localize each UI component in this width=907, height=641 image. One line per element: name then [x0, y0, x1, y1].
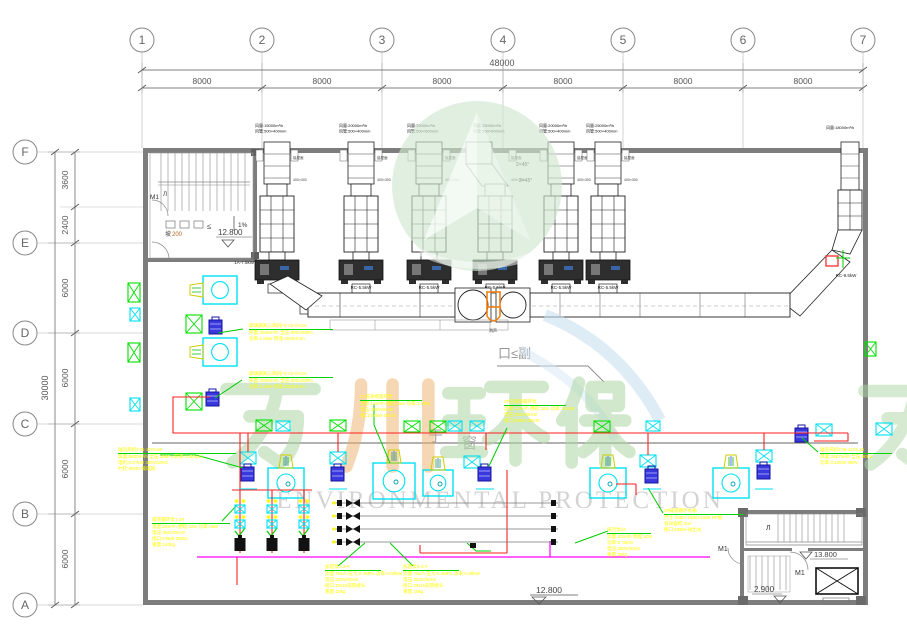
- shape: [731, 482, 735, 486]
- shape: [487, 307, 500, 321]
- shape: [209, 320, 222, 334]
- red-pipe: [248, 433, 764, 455]
- shape: [757, 465, 770, 479]
- shape: [404, 421, 420, 432]
- valve-dot: [306, 499, 310, 503]
- pump-icon: [645, 466, 658, 483]
- centrifugal-fan-icon: [423, 457, 453, 496]
- leader-line: [802, 438, 818, 452]
- shape: [240, 452, 256, 464]
- centrifugal-fan-icon: [190, 276, 237, 304]
- shape: [244, 464, 251, 467]
- shape: [594, 421, 610, 432]
- damper-green-icon: [865, 342, 876, 356]
- shape: [286, 482, 290, 486]
- centrifugal-fan-icon: [190, 338, 237, 366]
- leader-line: [390, 543, 413, 566]
- shape: [756, 450, 772, 462]
- damper-cyan-icon: [816, 424, 832, 436]
- shape: [256, 420, 272, 431]
- shape: [798, 425, 805, 428]
- shape: [212, 282, 229, 299]
- damper-green-icon: [186, 315, 202, 333]
- pump-body: [235, 538, 246, 551]
- shape: [212, 344, 229, 361]
- damper-cyan-icon: [464, 456, 480, 468]
- equipment-piping-layer: 消声: [0, 0, 907, 641]
- pump-icon: [478, 464, 491, 481]
- leader-line: [338, 543, 365, 566]
- shape: [209, 389, 216, 392]
- shape: [481, 464, 488, 467]
- red-pipe: [173, 397, 848, 433]
- fan-inlet-cone: [190, 345, 203, 359]
- shape: [478, 467, 491, 481]
- shape: [551, 539, 556, 545]
- shape: [128, 343, 140, 362]
- shape: [186, 315, 202, 333]
- valve-icon: [346, 525, 360, 533]
- shape: [551, 513, 556, 519]
- damper-green-icon: [594, 421, 610, 432]
- shape: [394, 480, 398, 484]
- shape: [203, 276, 237, 304]
- shape: [332, 540, 335, 543]
- shape: [795, 428, 808, 442]
- pump-icon: [757, 462, 770, 479]
- damper-cyan-icon: [130, 308, 140, 321]
- damper-cyan-icon: [646, 421, 660, 431]
- shape: [337, 539, 342, 545]
- shape: [337, 500, 342, 506]
- valve-dot: [299, 515, 303, 519]
- shape: [487, 292, 500, 307]
- shape: [430, 421, 446, 432]
- valve-row: [332, 538, 558, 546]
- shape: [551, 500, 556, 506]
- shape: [206, 392, 219, 406]
- valve-dot: [274, 515, 278, 519]
- pump-body: [267, 538, 278, 551]
- shape: [760, 462, 767, 465]
- damper-cyan-icon: [756, 450, 772, 462]
- centrifugal-fan-icon: [590, 455, 626, 498]
- leader-line: [160, 455, 243, 468]
- shape: [876, 423, 892, 435]
- shape: [464, 456, 480, 468]
- valve-dot: [299, 499, 303, 503]
- damper-cyan-icon: [640, 455, 656, 467]
- valve-row: [332, 512, 558, 520]
- valve-dot: [267, 499, 271, 503]
- shape: [448, 421, 462, 431]
- pump-icon: [331, 464, 344, 481]
- valve-dot: [242, 515, 246, 519]
- valve-dot: [274, 499, 278, 503]
- shape: [646, 421, 660, 431]
- shape: [270, 535, 274, 538]
- valve-row: [332, 499, 558, 507]
- damper-cyan-icon: [470, 421, 484, 431]
- damper-cyan-icon: [448, 421, 462, 431]
- centrifugal-fan-icon: [268, 455, 304, 498]
- damper-green-icon: [330, 420, 346, 431]
- shape: [330, 420, 346, 431]
- shape: [337, 513, 342, 519]
- valve-icon: [346, 538, 360, 546]
- shape: [332, 514, 335, 517]
- silencer-label: 消声: [489, 327, 497, 333]
- pump-icon: [241, 464, 254, 481]
- damper-cyan-icon: [330, 452, 346, 464]
- damper-green-icon: [128, 283, 140, 302]
- damper-green-icon: [186, 393, 202, 410]
- valve-dot: [242, 499, 246, 503]
- shape: [130, 398, 140, 411]
- shape: [332, 527, 335, 530]
- centrifugal-fan-icon: [373, 450, 415, 499]
- valve-dot: [235, 499, 239, 503]
- leader-line: [575, 531, 608, 543]
- shape: [337, 526, 342, 532]
- damper-green-icon: [128, 343, 140, 362]
- damper-cyan-icon: [130, 398, 140, 411]
- valve-dot: [267, 515, 271, 519]
- valve-icon: [346, 499, 360, 507]
- leader-line: [648, 488, 663, 513]
- shape: [640, 455, 656, 467]
- damper-green-icon: [430, 421, 446, 432]
- valve-icon: [346, 512, 360, 520]
- shape: [438, 482, 442, 486]
- shape: [334, 464, 341, 467]
- valve-dot: [306, 515, 310, 519]
- shape: [330, 452, 346, 464]
- pump-body: [299, 538, 310, 551]
- valve-row: [332, 525, 558, 533]
- shape: [645, 469, 658, 483]
- valve-dot: [235, 515, 239, 519]
- cad-drawing-canvas: 1234567FEDCBA480008000800080008000800080…: [0, 0, 907, 641]
- damper-cyan-icon: [276, 421, 290, 431]
- shape: [331, 467, 344, 481]
- damper-green-icon: [256, 420, 272, 431]
- damper-cyan-icon: [876, 423, 892, 435]
- shape: [276, 421, 290, 431]
- shape: [203, 338, 237, 366]
- shape: [470, 543, 476, 548]
- leader-line: [489, 428, 507, 466]
- shape: [130, 308, 140, 321]
- shape: [128, 283, 140, 302]
- fan-inlet-cone: [190, 283, 203, 297]
- shape: [192, 288, 201, 292]
- shape: [302, 535, 306, 538]
- shape: [186, 393, 202, 410]
- shape: [241, 467, 254, 481]
- leader-line: [215, 380, 242, 398]
- shape: [608, 482, 612, 486]
- centrifugal-fan-icon: [713, 455, 749, 498]
- shape: [816, 424, 832, 436]
- red-pipe: [420, 470, 507, 553]
- shape: [470, 421, 484, 431]
- shape: [865, 342, 876, 356]
- shape: [332, 501, 335, 504]
- silencer-icon: [487, 292, 500, 321]
- shape: [238, 535, 242, 538]
- damper-green-icon: [404, 421, 420, 432]
- shape: [212, 317, 219, 320]
- pump-icon: [209, 317, 222, 334]
- damper-cyan-icon: [240, 452, 256, 464]
- shape: [551, 526, 556, 532]
- shape: [192, 350, 201, 354]
